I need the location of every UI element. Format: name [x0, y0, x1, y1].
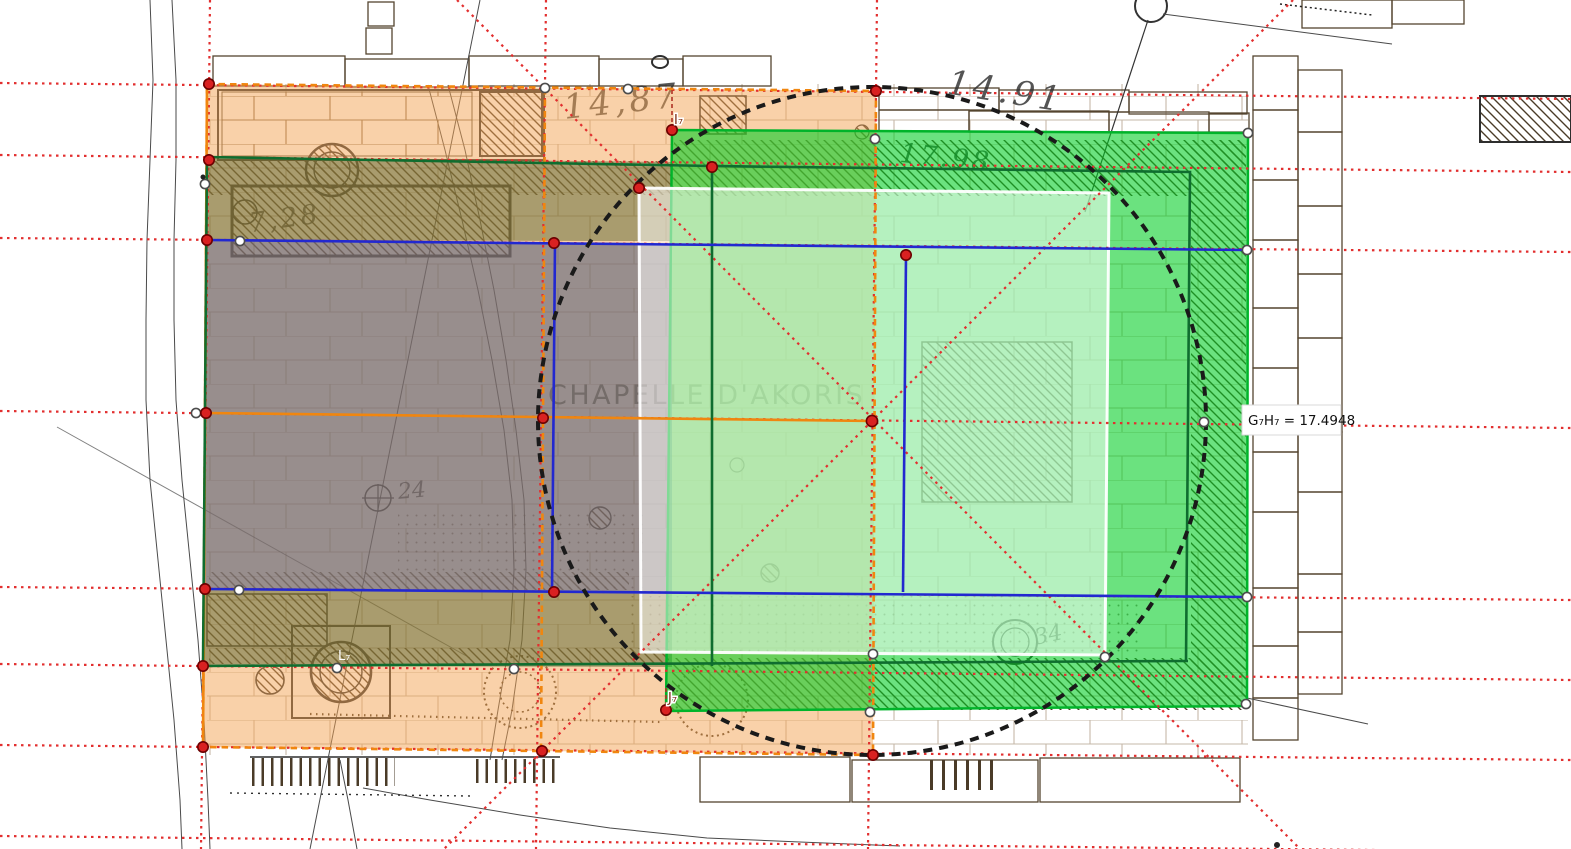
point[interactable] [1242, 245, 1251, 254]
point-J7[interactable] [661, 705, 671, 715]
measurement-label[interactable]: G₇H₇ = 17.4948 [1242, 405, 1355, 435]
point[interactable] [1242, 592, 1251, 601]
label-L7[interactable]: L₇ [338, 649, 350, 664]
point[interactable] [707, 162, 717, 172]
point-L7[interactable] [332, 663, 341, 672]
point[interactable] [509, 664, 518, 673]
label-J7[interactable]: J₇ [667, 691, 677, 706]
point[interactable] [204, 79, 214, 89]
point[interactable] [549, 238, 559, 248]
point[interactable] [191, 408, 200, 417]
olive-band-top[interactable] [207, 157, 672, 241]
point[interactable] [538, 413, 548, 423]
point[interactable] [1243, 128, 1252, 137]
point[interactable] [201, 408, 211, 418]
olive-band-bottom[interactable] [203, 589, 672, 667]
point[interactable] [623, 84, 632, 93]
point[interactable] [200, 179, 209, 188]
point[interactable] [868, 649, 877, 658]
label-I7[interactable]: I₇ [674, 113, 683, 128]
stone-blocks-right [1253, 56, 1342, 740]
point[interactable] [234, 585, 243, 594]
point[interactable] [901, 250, 911, 260]
point[interactable] [865, 707, 874, 716]
point[interactable] [540, 83, 549, 92]
point[interactable] [235, 236, 244, 245]
point[interactable] [204, 155, 214, 165]
point[interactable] [537, 746, 547, 756]
point[interactable] [200, 584, 210, 594]
point[interactable] [871, 86, 881, 96]
point[interactable] [1241, 699, 1250, 708]
point[interactable] [198, 742, 208, 752]
point[interactable] [868, 750, 878, 760]
point[interactable] [1100, 652, 1109, 661]
point[interactable] [870, 134, 879, 143]
point[interactable] [549, 587, 559, 597]
point[interactable] [201, 175, 206, 180]
point[interactable] [634, 183, 644, 193]
point-center[interactable] [866, 415, 877, 426]
measurement-label-text: G₇H₇ = 17.4948 [1248, 413, 1355, 429]
point[interactable] [202, 235, 212, 245]
point[interactable] [1199, 417, 1208, 426]
geometry-analysis-canvas: 14,87 14.91 7,28 17.98 24 34 CHAPELLE D'… [0, 0, 1571, 849]
point[interactable] [198, 661, 208, 671]
